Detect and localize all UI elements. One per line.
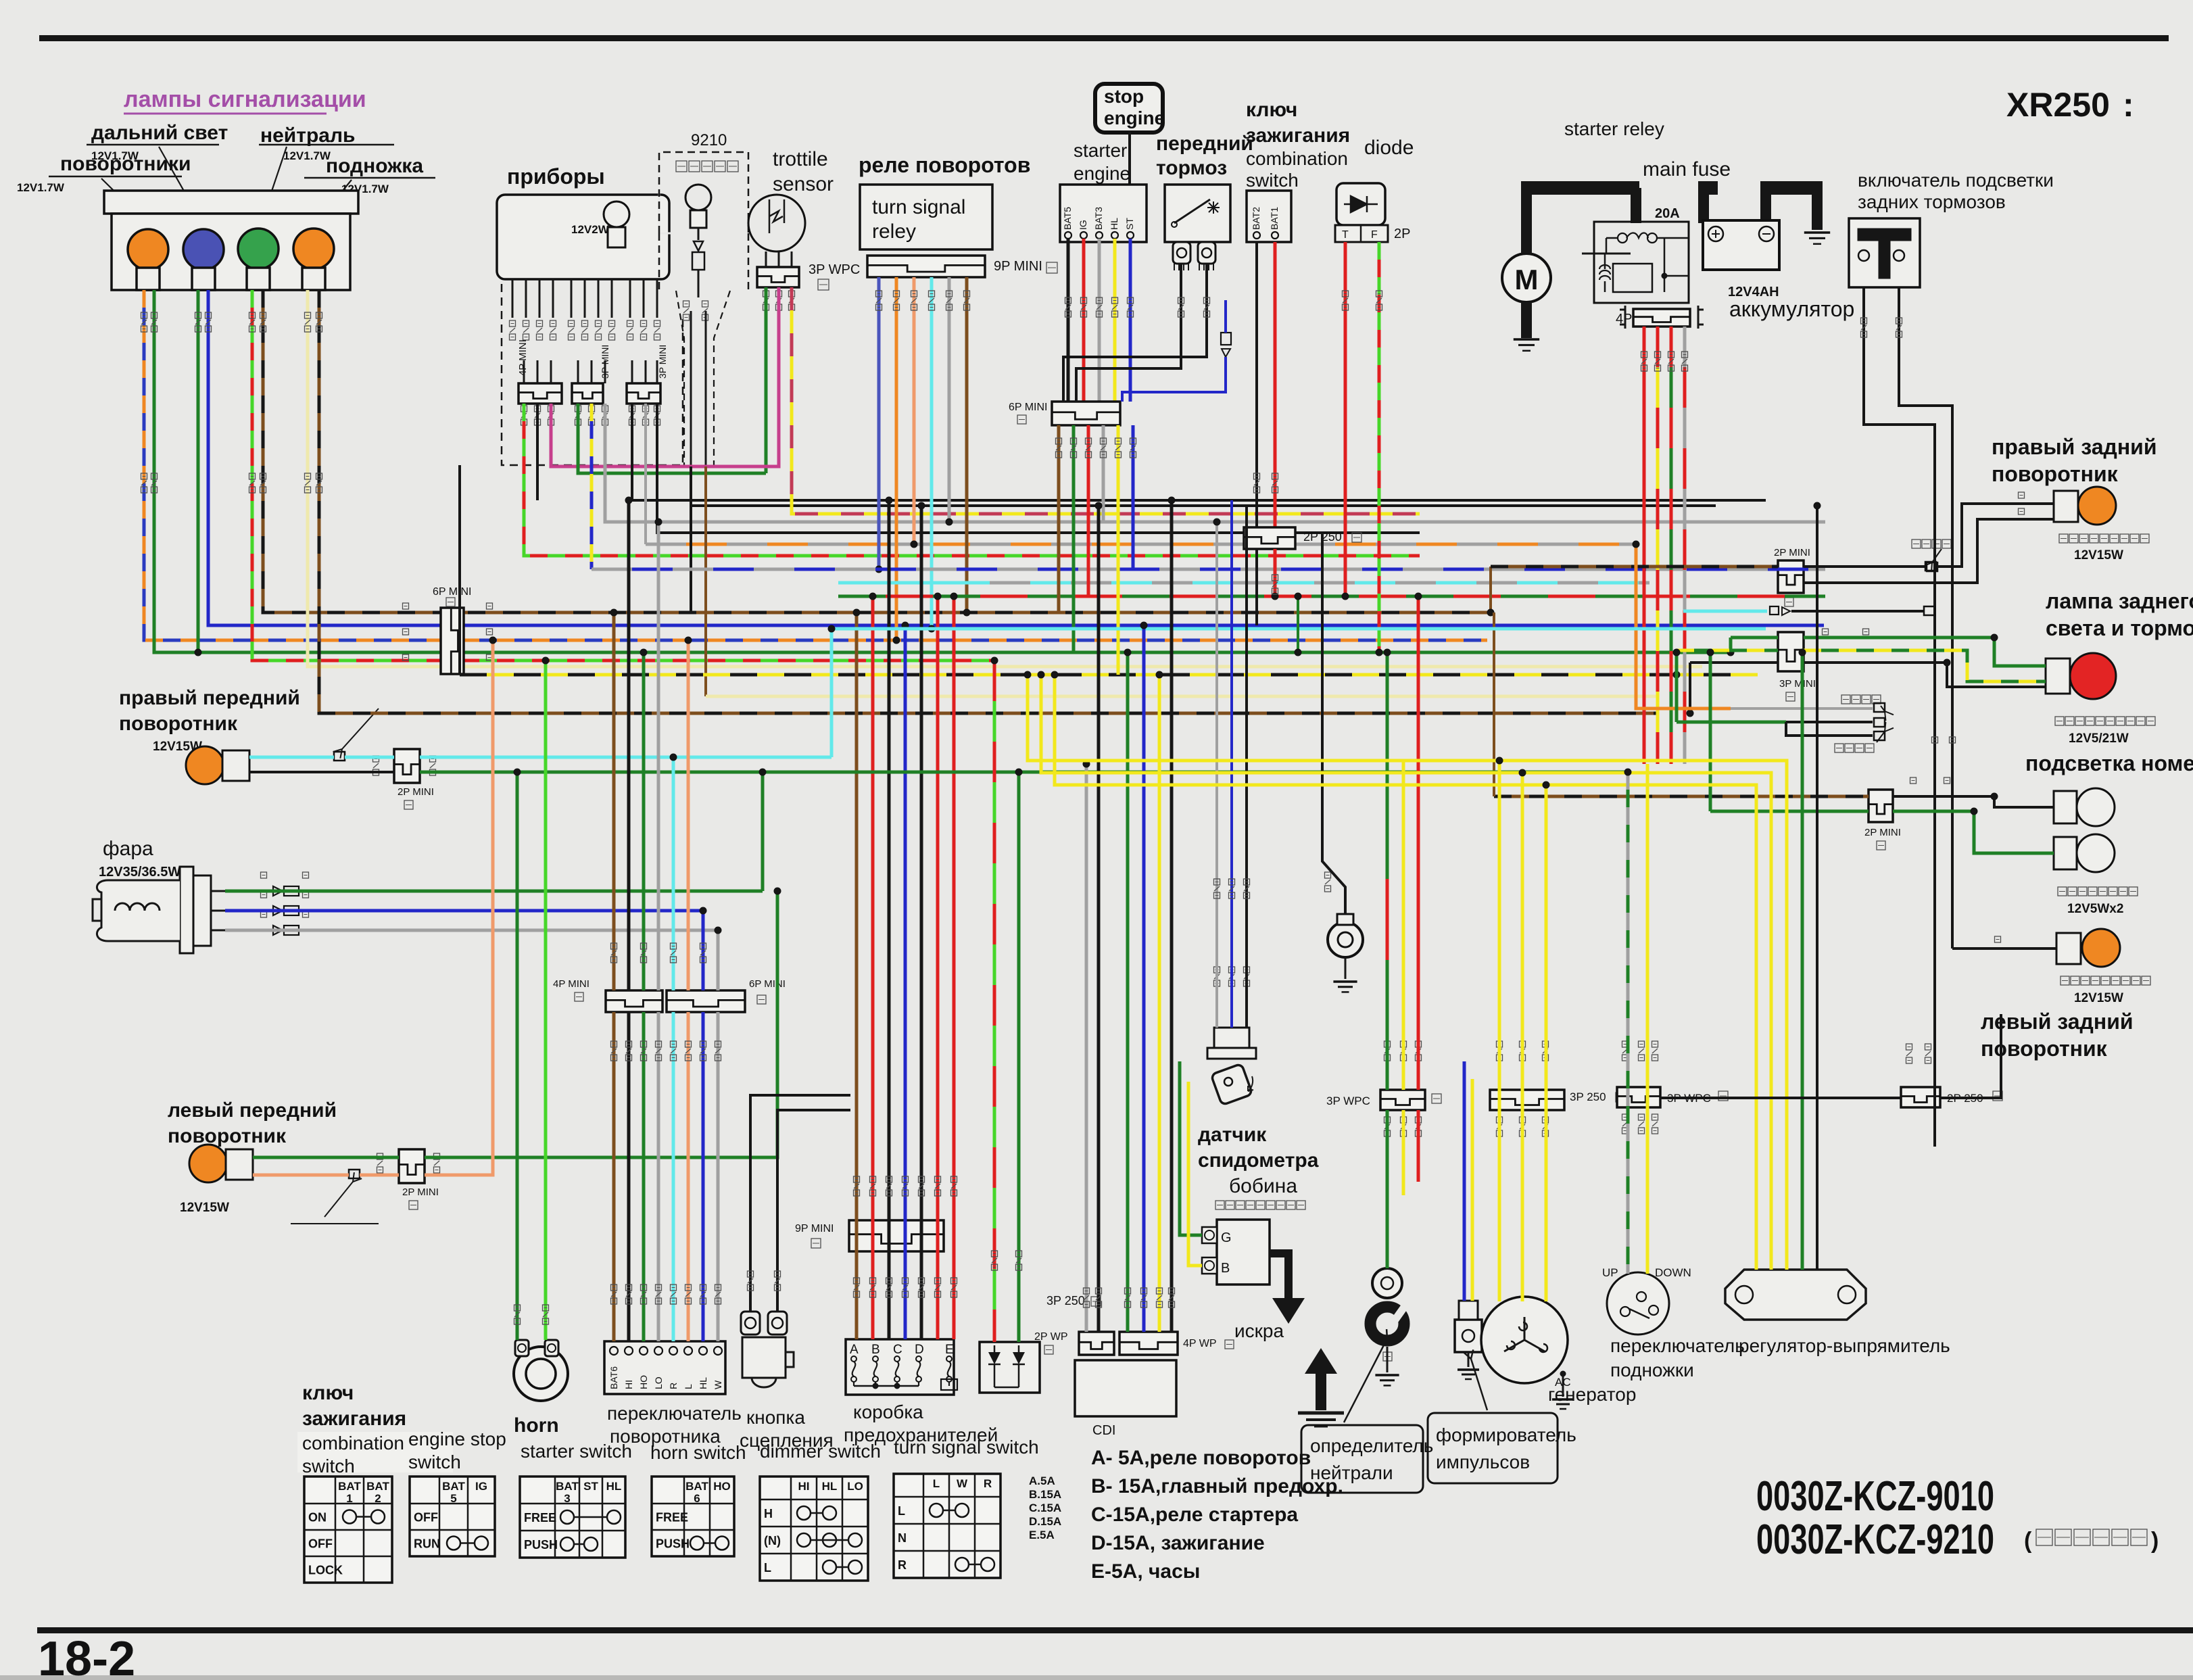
svg-text:sensor: sensor	[773, 173, 834, 195]
svg-text:BAT5: BAT5	[1062, 207, 1073, 230]
svg-text:12V15W: 12V15W	[2074, 548, 2123, 562]
svg-text:задних тормозов: задних тормозов	[1858, 191, 2006, 212]
svg-text:ON: ON	[308, 1511, 327, 1525]
svg-text:импульсов: импульсов	[1436, 1451, 1530, 1472]
svg-text:спидометра: спидометра	[1198, 1149, 1319, 1172]
svg-text:D.15A: D.15A	[1029, 1515, 1061, 1528]
svg-text:12V5/21W: 12V5/21W	[2069, 731, 2129, 746]
svg-text:левый передний: левый передний	[168, 1099, 337, 1122]
svg-text:N: N	[898, 1531, 907, 1545]
svg-text:2P: 2P	[1394, 226, 1410, 241]
svg-text:9P MINI: 9P MINI	[795, 1223, 834, 1234]
svg-text:): )	[2151, 1528, 2159, 1554]
svg-text:9P MINI: 9P MINI	[994, 259, 1042, 274]
svg-text:поворотник: поворотник	[168, 1125, 287, 1147]
svg-text:M: M	[1515, 264, 1539, 295]
svg-text:R: R	[898, 1558, 907, 1572]
svg-text:F: F	[1371, 229, 1378, 241]
svg-text:аккумулятор: аккумулятор	[1729, 297, 1854, 321]
svg-text:LOCK: LOCK	[308, 1564, 343, 1577]
svg-text:6: 6	[694, 1492, 700, 1505]
svg-text:3P MINI: 3P MINI	[1779, 678, 1816, 690]
svg-text:main fuse: main fuse	[1643, 158, 1731, 181]
svg-text:OFF: OFF	[308, 1537, 333, 1551]
svg-text:ключ: ключ	[1246, 99, 1297, 121]
svg-text:поворотники: поворотники	[60, 153, 191, 175]
svg-text:зажигания: зажигания	[1246, 124, 1350, 147]
svg-text:1: 1	[346, 1492, 352, 1505]
svg-text:D-15A, зажигание: D-15A, зажигание	[1091, 1532, 1265, 1554]
svg-text:подножки: подножки	[1610, 1360, 1694, 1381]
svg-text:CDI: CDI	[1092, 1423, 1115, 1438]
svg-text:OFF: OFF	[414, 1511, 438, 1525]
svg-text:E.5A: E.5A	[1029, 1529, 1055, 1541]
svg-text:зажигания: зажигания	[302, 1408, 406, 1430]
svg-text:C-15A,реле стартера: C-15A,реле стартера	[1091, 1504, 1298, 1526]
svg-text:UP: UP	[1602, 1266, 1618, 1279]
svg-text:starter reley: starter reley	[1564, 118, 1664, 139]
svg-text:9210: 9210	[691, 131, 727, 149]
svg-text:ST: ST	[1124, 218, 1135, 230]
svg-text:G: G	[1221, 1230, 1232, 1245]
svg-text:ключ: ключ	[302, 1382, 354, 1404]
svg-text:A- 5A,реле поворотов: A- 5A,реле поворотов	[1091, 1447, 1311, 1469]
svg-text:LO: LO	[847, 1480, 863, 1493]
svg-text:PUSH: PUSH	[656, 1537, 690, 1551]
svg-text:включатель подсветки: включатель подсветки	[1858, 170, 2054, 191]
svg-text:H: H	[764, 1507, 773, 1520]
svg-text:света и тормоза: света и тормоза	[2046, 616, 2193, 640]
svg-text:переключатель: переключатель	[1610, 1335, 1745, 1356]
svg-text:HI: HI	[623, 1380, 634, 1389]
svg-text:регулятор-выпрямитель: регулятор-выпрямитель	[1739, 1335, 1950, 1356]
svg-text:BAT1: BAT1	[1269, 207, 1280, 230]
svg-text:switch: switch	[1246, 170, 1299, 191]
svg-text:engine: engine	[1074, 163, 1130, 184]
svg-text:кнопка: кнопка	[746, 1407, 805, 1428]
svg-text:W: W	[957, 1477, 968, 1490]
svg-text:формирователь: формирователь	[1436, 1424, 1576, 1445]
svg-text:T: T	[1342, 229, 1349, 241]
svg-text:IG: IG	[475, 1480, 487, 1493]
svg-text:combination: combination	[1246, 148, 1348, 169]
svg-text:20A: 20A	[1655, 206, 1680, 221]
svg-text:12V15W: 12V15W	[2074, 991, 2123, 1005]
svg-text:BAT6: BAT6	[608, 1366, 619, 1389]
svg-text:поворотник: поворотник	[1992, 462, 2119, 486]
svg-text:HO: HO	[713, 1480, 731, 1493]
svg-text:3: 3	[564, 1492, 570, 1505]
svg-text:L: L	[683, 1384, 694, 1389]
svg-text:E-5A, часы: E-5A, часы	[1091, 1560, 1200, 1583]
svg-text:B: B	[1221, 1261, 1230, 1276]
svg-text:BAT: BAT	[685, 1480, 708, 1493]
svg-text:R: R	[984, 1477, 992, 1490]
svg-text:нейтраль: нейтраль	[260, 124, 355, 147]
svg-text:правый передний: правый передний	[119, 687, 300, 709]
svg-text:определитель: определитель	[1310, 1435, 1433, 1456]
svg-text:BAT: BAT	[556, 1480, 579, 1493]
svg-text:BAT: BAT	[366, 1480, 389, 1493]
svg-text:PUSH: PUSH	[524, 1538, 558, 1552]
svg-text:2P MINI: 2P MINI	[1774, 547, 1810, 558]
svg-text:12V1.7W: 12V1.7W	[283, 149, 331, 162]
svg-text:(: (	[2024, 1528, 2032, 1554]
svg-text:12V5Wx2: 12V5Wx2	[2067, 902, 2123, 916]
svg-text:приборы: приборы	[507, 164, 605, 189]
svg-text:LO: LO	[653, 1376, 664, 1389]
svg-text:3P WPC: 3P WPC	[809, 262, 860, 277]
svg-text:6P MINI: 6P MINI	[433, 586, 472, 598]
svg-text:передний: передний	[1156, 133, 1253, 155]
svg-text:turn signal switch: turn signal switch	[894, 1437, 1039, 1458]
svg-text:starter switch: starter switch	[521, 1441, 632, 1462]
svg-text:turn signal: turn signal	[872, 196, 965, 218]
svg-text:switch: switch	[408, 1451, 461, 1472]
svg-text:diode: diode	[1364, 137, 1414, 159]
svg-text:HL: HL	[1109, 218, 1119, 230]
svg-text:FREE: FREE	[524, 1511, 556, 1525]
svg-text::: :	[2123, 86, 2134, 124]
svg-text:C: C	[893, 1343, 902, 1357]
svg-text:engine stop: engine stop	[408, 1429, 506, 1449]
svg-text:combination: combination	[302, 1433, 404, 1454]
svg-text:тормоз: тормоз	[1156, 157, 1227, 179]
svg-text:переключатель: переключатель	[607, 1403, 742, 1424]
svg-text:5: 5	[450, 1492, 456, 1505]
svg-text:HO: HO	[638, 1375, 649, 1389]
svg-text:4P WP: 4P WP	[1183, 1338, 1217, 1349]
svg-text:RUN: RUN	[414, 1537, 440, 1551]
svg-text:stop: stop	[1104, 86, 1144, 107]
svg-text:B.15A: B.15A	[1029, 1488, 1061, 1501]
svg-text:2: 2	[375, 1492, 381, 1505]
svg-text:искра: искра	[1234, 1320, 1284, 1341]
svg-text:W: W	[713, 1380, 723, 1389]
svg-text:HL: HL	[698, 1377, 708, 1389]
svg-text:L: L	[898, 1504, 905, 1518]
svg-text:HL: HL	[822, 1480, 838, 1493]
svg-text:HI: HI	[798, 1480, 810, 1493]
svg-text:A.5A: A.5A	[1029, 1474, 1055, 1487]
svg-text:правый задний: правый задний	[1992, 435, 2157, 459]
svg-text:3P 250: 3P 250	[1570, 1090, 1606, 1103]
svg-text:подсветка номера: подсветка номера	[2025, 751, 2193, 775]
svg-text:HL: HL	[606, 1480, 622, 1493]
svg-text:12V35/36.5W: 12V35/36.5W	[99, 865, 180, 880]
svg-text:лампы сигнализации: лампы сигнализации	[124, 87, 366, 112]
svg-text:(N): (N)	[764, 1534, 781, 1547]
svg-text:engine: engine	[1104, 107, 1165, 128]
svg-text:FREE: FREE	[656, 1511, 688, 1525]
svg-text:XR250: XR250	[2006, 86, 2110, 124]
svg-text:лампа заднего: лампа заднего	[2046, 589, 2193, 613]
svg-text:horn switch: horn switch	[650, 1442, 746, 1463]
svg-text:поворотник: поворотник	[119, 713, 238, 735]
svg-text:подножка: подножка	[326, 155, 423, 177]
svg-text:3P MINI: 3P MINI	[657, 345, 668, 379]
svg-text:reley: reley	[872, 220, 916, 243]
svg-text:IG: IG	[1078, 220, 1088, 230]
svg-text:starter: starter	[1074, 140, 1127, 161]
svg-text:бобина: бобина	[1229, 1175, 1297, 1197]
svg-text:левый задний: левый задний	[1981, 1009, 2134, 1034]
svg-text:ST: ST	[583, 1480, 598, 1493]
svg-text:D: D	[915, 1343, 924, 1357]
svg-text:B: B	[871, 1343, 880, 1357]
svg-text:датчик: датчик	[1198, 1124, 1267, 1146]
svg-text:E: E	[945, 1343, 954, 1357]
svg-text:12V15W: 12V15W	[180, 1201, 229, 1215]
svg-text:dimmer switch: dimmer switch	[760, 1441, 881, 1462]
svg-text:horn: horn	[514, 1414, 559, 1437]
svg-text:BAT3: BAT3	[1093, 207, 1104, 230]
svg-text:3P WPC: 3P WPC	[1326, 1095, 1370, 1107]
svg-text:BAT: BAT	[442, 1480, 465, 1493]
svg-text:12V1.7W: 12V1.7W	[17, 181, 65, 194]
svg-text:trottile: trottile	[773, 148, 828, 170]
svg-text:реле поворотов: реле поворотов	[859, 153, 1030, 177]
svg-text:18-2: 18-2	[38, 1632, 135, 1680]
svg-text:4P MINI: 4P MINI	[553, 978, 589, 990]
svg-text:12V2W: 12V2W	[571, 223, 610, 236]
svg-text:DOWN: DOWN	[1655, 1266, 1691, 1279]
svg-text:3P 250: 3P 250	[1046, 1294, 1085, 1307]
svg-text:R: R	[668, 1383, 679, 1389]
svg-text:L: L	[764, 1561, 771, 1575]
svg-text:A: A	[850, 1343, 859, 1357]
svg-text:switch: switch	[302, 1456, 355, 1477]
svg-text:2P MINI: 2P MINI	[1864, 827, 1901, 838]
svg-text:0030Z-KCZ-9210: 0030Z-KCZ-9210	[1756, 1516, 1994, 1563]
svg-text:C.15A: C.15A	[1029, 1502, 1061, 1514]
svg-text:2P WP: 2P WP	[1034, 1331, 1068, 1343]
svg-text:2P MINI: 2P MINI	[402, 1186, 439, 1198]
svg-text:B- 15A,главный предохр.: B- 15A,главный предохр.	[1091, 1475, 1343, 1497]
svg-text:фара: фара	[103, 838, 153, 860]
svg-text:BAT2: BAT2	[1251, 207, 1261, 230]
svg-text:6P MINI: 6P MINI	[1009, 402, 1048, 413]
svg-text:BAT: BAT	[338, 1480, 361, 1493]
svg-text:коробка: коробка	[853, 1401, 923, 1422]
svg-text:дальний свет: дальний свет	[91, 122, 228, 144]
svg-text:0030Z-KCZ-9010: 0030Z-KCZ-9010	[1756, 1473, 1994, 1520]
svg-text:6P MINI: 6P MINI	[749, 978, 786, 990]
svg-text:L: L	[933, 1477, 940, 1490]
svg-text:2P MINI: 2P MINI	[397, 786, 434, 798]
